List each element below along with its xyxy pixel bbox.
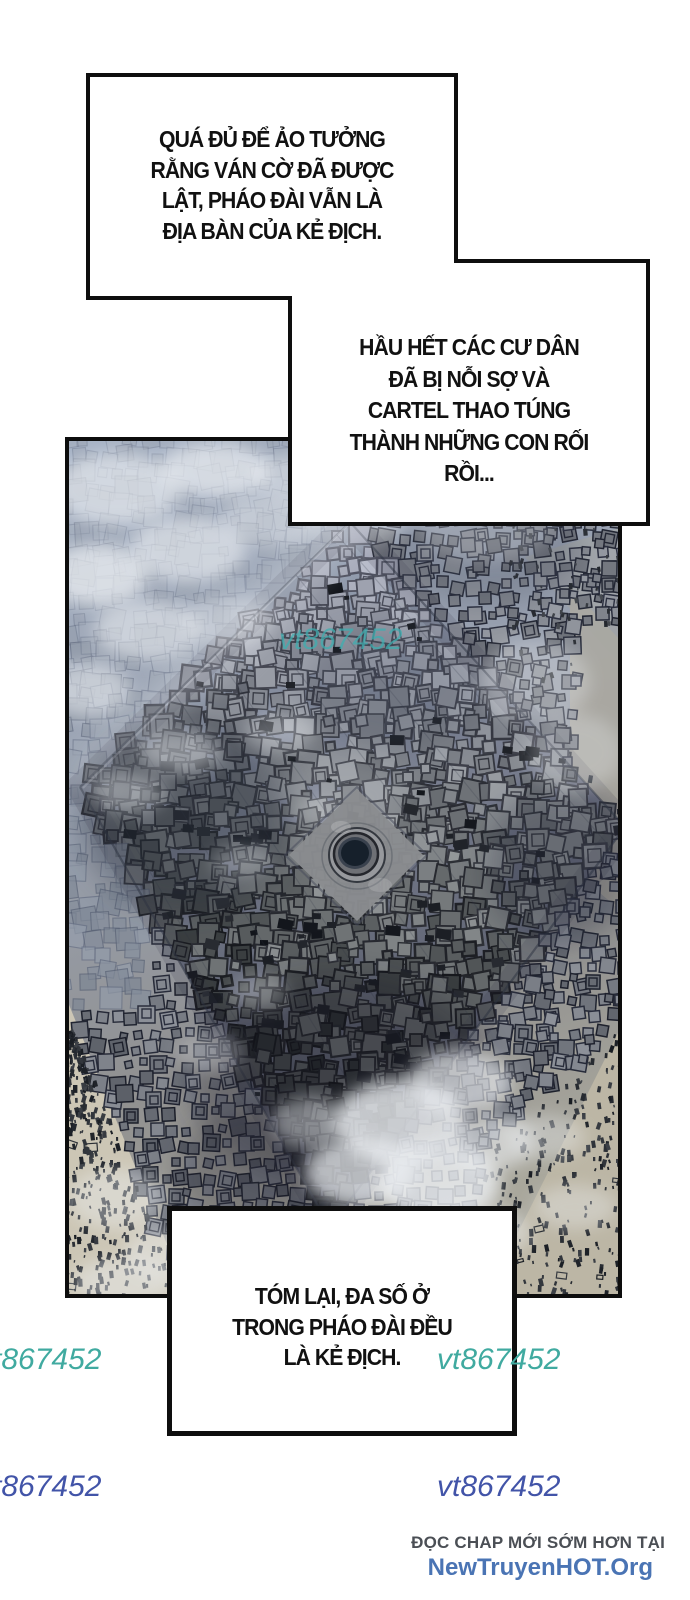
svg-text:vt867452: vt867452 (279, 623, 403, 656)
